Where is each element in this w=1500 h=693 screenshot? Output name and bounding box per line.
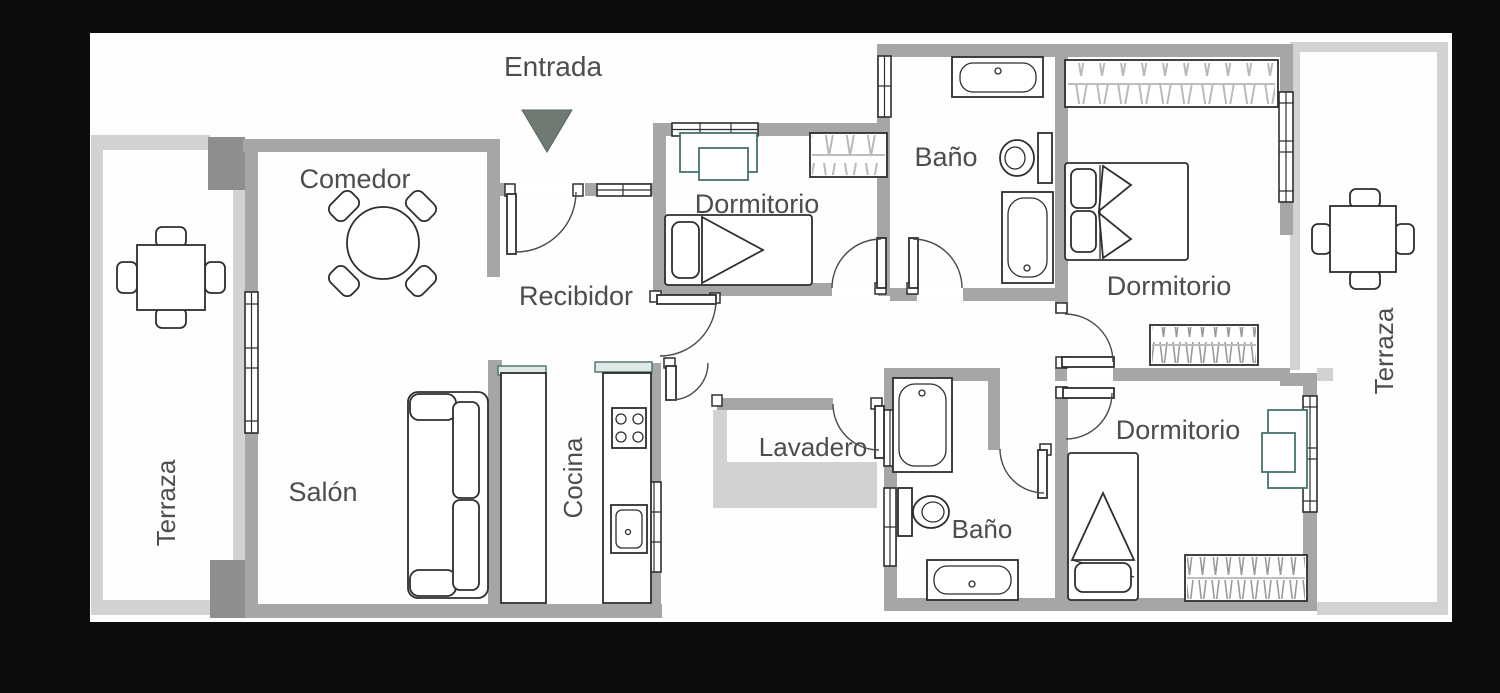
label-bano-top: Baño <box>914 142 977 172</box>
label-lavadero: Lavadero <box>759 432 867 462</box>
sofa <box>408 392 488 598</box>
bedroom2-window <box>1279 92 1293 202</box>
kitchen-sink <box>611 505 647 553</box>
label-dormitorio-bottom: Dormitorio <box>1116 415 1241 445</box>
bathtub-bath1 <box>1002 192 1053 283</box>
desk-bedroom3 <box>1262 410 1307 488</box>
bath2-window-lower <box>884 488 896 566</box>
label-terraza-left: Terraza <box>151 459 181 546</box>
radiator-bedroom2 <box>1150 325 1258 365</box>
wardrobe-bedroom1 <box>810 133 887 177</box>
sink-bath1 <box>952 57 1043 97</box>
living-room-window <box>245 292 258 433</box>
floor-plan-screenshot: Entrada Comedor Recibidor Dormitorio Bañ… <box>0 0 1500 693</box>
label-entrada: Entrada <box>504 51 602 82</box>
label-dormitorio-right: Dormitorio <box>1107 271 1232 301</box>
bathtub-bath2 <box>893 378 952 472</box>
label-bano-bottom: Baño <box>952 514 1013 544</box>
label-terraza-right: Terraza <box>1369 307 1399 394</box>
label-salon: Salón <box>288 477 357 507</box>
bed-single-bedroom3 <box>1068 453 1138 600</box>
bed-single-bedroom1 <box>665 215 812 285</box>
label-dormitorio-top: Dormitorio <box>695 189 820 219</box>
label-recibidor: Recibidor <box>519 281 633 311</box>
bed-double-bedroom2 <box>1065 163 1188 260</box>
entry-window <box>597 184 651 196</box>
sink-bath2 <box>927 560 1018 600</box>
cooktop <box>612 408 646 448</box>
label-cocina: Cocina <box>558 437 588 518</box>
wardrobe-bedroom3 <box>1185 555 1307 601</box>
floor-plan-svg: Entrada Comedor Recibidor Dormitorio Bañ… <box>0 0 1500 693</box>
wardrobe-bedroom2 <box>1065 60 1278 107</box>
bath1-window <box>878 56 891 117</box>
label-comedor: Comedor <box>299 164 410 194</box>
